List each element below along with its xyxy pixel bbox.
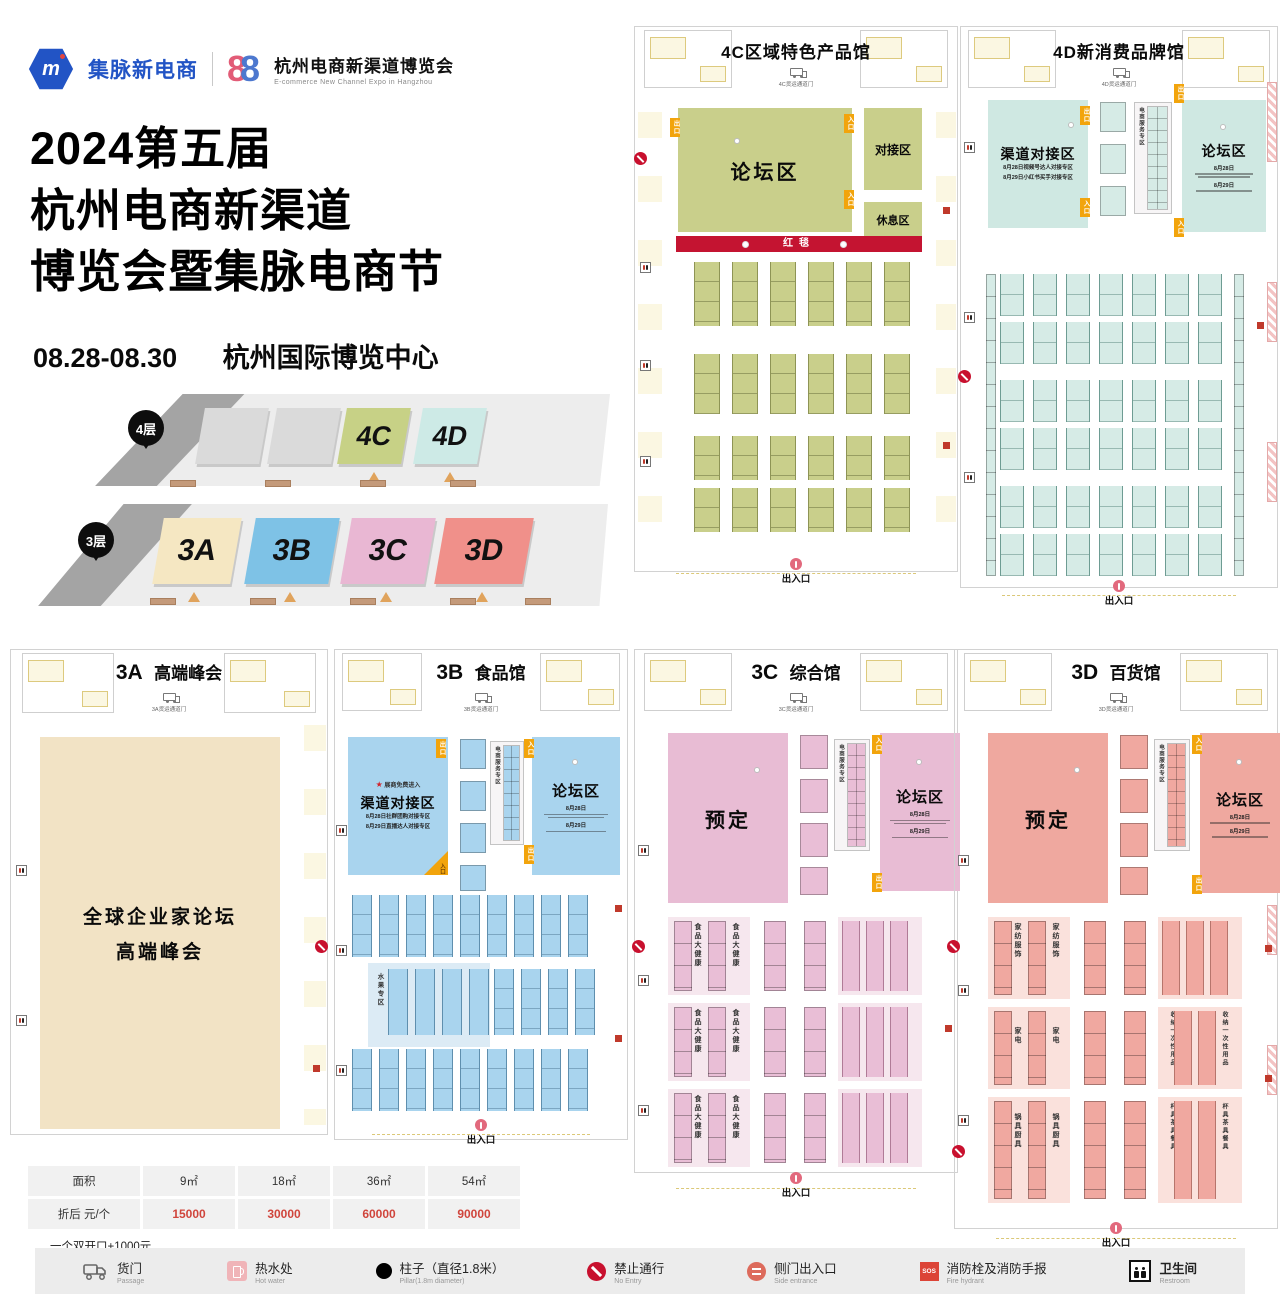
price-header-cell: 面积 xyxy=(28,1166,140,1196)
truck-gate-label: 3C货运通道门 xyxy=(632,705,960,713)
no-entry-icon xyxy=(632,940,645,953)
hatched-area xyxy=(1267,1045,1277,1095)
service-booths xyxy=(1147,106,1168,210)
no-entry-icon xyxy=(634,152,647,165)
tag-entry: 入口 xyxy=(872,735,882,754)
restroom-icon xyxy=(640,360,651,371)
arrow-up-icon xyxy=(188,586,200,602)
booth-grid xyxy=(694,488,910,532)
title-line-2: 杭州电商新渠道 xyxy=(30,180,444,242)
floor3-hall-3b: 3B xyxy=(244,518,340,584)
restroom-icon xyxy=(336,945,347,956)
star-note: ★ 展商免费进入 xyxy=(376,780,421,789)
booth-cell xyxy=(800,779,828,813)
zone-reserved: 预定 xyxy=(668,733,788,903)
floor3-hall-3c: 3C xyxy=(340,518,436,584)
booth-column xyxy=(994,1011,1012,1085)
booth-column xyxy=(1084,1101,1106,1199)
price-header-cell: 54㎡ xyxy=(428,1166,520,1196)
restroom-icon xyxy=(638,845,649,856)
booth-grid xyxy=(388,969,489,1035)
fire-hydrant-icon xyxy=(943,207,950,214)
hatched-area xyxy=(1267,442,1277,502)
title-line-1: 2024第五届 xyxy=(30,118,444,180)
loading-dock xyxy=(450,598,476,605)
legend-item-hot-water: 热水处Hot water xyxy=(227,1258,293,1285)
fire-hydrant-icon xyxy=(615,1035,622,1042)
truck-icon xyxy=(1110,693,1123,701)
no-entry-icon xyxy=(315,940,328,953)
arrow-up-icon xyxy=(380,586,392,602)
tag-entry: 入口 xyxy=(438,863,446,874)
truck-gate-label: 3B货运通道门 xyxy=(332,705,630,713)
fire-hydrant-icon xyxy=(1265,1075,1272,1082)
floor4-hall-unlabeled-1 xyxy=(195,408,269,464)
booth-grid xyxy=(694,262,910,326)
truck-gate-label: 4D货运通道门 xyxy=(958,80,1280,88)
booth-column xyxy=(1084,1011,1106,1085)
restroom-icon xyxy=(638,975,649,986)
88-logo-icon: 88 xyxy=(227,51,260,87)
hall-3c-plan: 3C 综合馆 3C货运通道门 预定 电商服务专区 论坛区 8月28日 8月29日… xyxy=(632,645,960,1195)
hall-title: 4D新消费品牌馆 xyxy=(958,38,1280,63)
booth-grid xyxy=(1000,380,1222,422)
booth-cell xyxy=(800,735,828,769)
zone-forum: 论坛区 xyxy=(678,108,852,232)
zone-ecommerce-service: 电商服务专区 xyxy=(490,741,524,845)
gate-label: 出入口 xyxy=(952,1235,1280,1249)
floor4-hall-4d: 4D xyxy=(413,408,487,464)
tag-entry: 入口 xyxy=(524,739,534,758)
no-entry-icon xyxy=(958,370,971,383)
price-header-cell: 9㎡ xyxy=(143,1166,235,1196)
legend-item-restroom: 卫生间Restroom xyxy=(1129,1258,1197,1285)
fire-hydrant-icon xyxy=(313,1065,320,1072)
booth-grid xyxy=(694,436,910,480)
booth-grid xyxy=(1000,274,1222,316)
floor4-hall-unlabeled-2 xyxy=(267,408,341,464)
pillar-dot xyxy=(840,241,847,248)
hall-3a-plan: 3A 高端峰会 3A货运通道门 全球企业家论坛 高端峰会 xyxy=(8,645,330,1153)
hall-gate: 出入口 xyxy=(632,1172,960,1199)
truck-gate-label: 4C货运通道门 xyxy=(632,80,960,88)
red-carpet: 红毯 xyxy=(676,236,922,252)
price-table: 面积 9㎡ 18㎡ 36㎡ 54㎡ 折后 元/个 15000 30000 600… xyxy=(28,1166,520,1229)
booth-column xyxy=(764,1093,786,1163)
booth-column xyxy=(1124,1101,1146,1199)
expo-name-en: E-commerce New Channel Expo in Hangzhou xyxy=(274,79,454,86)
booth-cell xyxy=(1100,186,1126,216)
arrow-up-icon xyxy=(476,586,488,602)
tag-entry: 入口 xyxy=(844,114,854,133)
truck-icon xyxy=(83,1262,109,1280)
booth-grid xyxy=(694,354,910,414)
booth-cell xyxy=(1100,102,1126,132)
hatched-area xyxy=(1267,282,1277,342)
pillar-dot xyxy=(742,241,749,248)
booth-column xyxy=(1084,921,1106,995)
price-row-label: 折后 元/个 xyxy=(28,1199,140,1229)
restroom-icon xyxy=(964,142,975,153)
booth-column xyxy=(764,1007,786,1077)
hatched-area xyxy=(1267,82,1277,162)
zone-summit: 全球企业家论坛 高端峰会 xyxy=(40,737,280,1129)
floor3-hall-3a: 3A xyxy=(152,518,242,584)
booth-column xyxy=(994,1101,1012,1199)
tag-exit: 出口 xyxy=(1192,875,1202,894)
truck-icon xyxy=(475,693,488,701)
divider xyxy=(212,52,213,86)
truck-gate: 3C货运通道门 xyxy=(632,693,960,713)
booth-grid xyxy=(842,921,908,991)
booth-column xyxy=(1028,1101,1046,1199)
loading-dock xyxy=(360,480,386,487)
pillar-dot xyxy=(1074,767,1080,773)
zone-matching: 对接区 xyxy=(864,108,922,190)
poster-canvas: m 集脉新电商 88 杭州电商新渠道博览会 E-commerce New Cha… xyxy=(0,0,1280,1316)
pillar-icon xyxy=(376,1263,392,1279)
price-header-cell: 18㎡ xyxy=(238,1166,330,1196)
zone-ecommerce-service: 电商服务专区 xyxy=(1154,739,1190,851)
booth-column xyxy=(674,1007,692,1077)
restroom-icon xyxy=(16,865,27,876)
jimai-logo-icon: m xyxy=(28,46,74,92)
loading-dock xyxy=(265,480,291,487)
booth-cell xyxy=(1120,823,1148,857)
arrow-up-icon xyxy=(284,586,296,602)
legend-bar: 货门Passage 热水处Hot water 柱子（直径1.8米）Pillar(… xyxy=(35,1248,1245,1294)
star-icon: ★ xyxy=(376,780,383,789)
legend-item-no-entry: 禁止通行No Entry xyxy=(587,1258,664,1285)
restroom-icon xyxy=(336,825,347,836)
tag-entry: 入口 xyxy=(1080,198,1090,217)
loading-dock xyxy=(250,598,276,605)
legend-item-fire-hydrant: SOS 消防栓及消防手报Fire hydrant xyxy=(920,1258,1047,1285)
restroom-icon xyxy=(640,262,651,273)
no-entry-icon xyxy=(587,1262,606,1281)
booth-column xyxy=(708,921,726,991)
hall-4c-plan: 4C区域特色产品馆 4C货运通道门 论坛区 出口 入口 入口 对接区 休息区 红… xyxy=(632,22,960,614)
event-date: 08.28-08.30 xyxy=(33,343,177,373)
fire-hydrant-icon xyxy=(943,442,950,449)
restroom-icon xyxy=(958,985,969,996)
booth-column xyxy=(1124,921,1146,995)
loading-dock xyxy=(170,480,196,487)
hall-3b-plan: 3B 食品馆 3B货运通道门 ★ 展商免费进入 渠道对接区 8月28日社群团购对… xyxy=(332,645,630,1180)
booth-grid xyxy=(352,1049,588,1111)
truck-gate-label: 3A货运通道门 xyxy=(8,705,330,713)
fire-hydrant-icon xyxy=(945,1025,952,1032)
tag-exit: 出口 xyxy=(670,118,680,137)
jimai-logo-mark: m xyxy=(42,58,60,81)
zone-reserved: 预定 xyxy=(988,733,1108,903)
booth-grid xyxy=(1000,486,1222,528)
zone-forum: 论坛区 8月28日 8月29日 xyxy=(1182,100,1266,232)
zone-rest: 休息区 xyxy=(864,202,922,238)
hall-4d-plan: 4D新消费品牌馆 4D货运通道门 渠道对接区 8月28日视频号达人对接专区 8月… xyxy=(958,22,1280,614)
restroom-icon xyxy=(336,1065,347,1076)
booth-grid xyxy=(1000,534,1222,576)
restroom-icon xyxy=(964,472,975,483)
title-line-3: 博览会暨集脉电商节 xyxy=(30,241,444,303)
floor4-hall-4c: 4C xyxy=(337,408,411,464)
gate-icon xyxy=(475,1119,487,1131)
booth-grid xyxy=(1174,1101,1216,1199)
booth-cell xyxy=(460,865,486,891)
hall-title: 3D 百货馆 xyxy=(952,659,1280,685)
booth-grid xyxy=(494,969,595,1035)
loading-dock xyxy=(350,598,376,605)
booth-column xyxy=(1028,1011,1046,1085)
truck-gate: 4C货运通道门 xyxy=(632,68,960,88)
floor-overview-diagram: 4层 3层 4C 4D 3A 3B 3C 3D xyxy=(20,386,620,636)
gate-label: 出入口 xyxy=(958,593,1280,607)
hall-title: 3A 高端峰会 xyxy=(8,659,330,685)
booth-cell xyxy=(460,823,486,853)
tag-entry: 入口 xyxy=(1174,218,1184,237)
booth-cell xyxy=(460,739,486,769)
truck-gate: 3B货运通道门 xyxy=(332,693,630,713)
tag-exit: 出口 xyxy=(872,873,882,892)
tag-entry: 入口 xyxy=(1192,735,1202,754)
tag-exit: 出口 xyxy=(524,845,534,864)
fire-hydrant-icon xyxy=(615,905,622,912)
pillar-dot xyxy=(1220,124,1226,130)
booth-column xyxy=(674,1093,692,1163)
price-value: 90000 xyxy=(428,1199,520,1229)
truck-gate: 4D货运通道门 xyxy=(958,68,1280,88)
legend-item-side-entrance: 侧门出入口Side entrance xyxy=(747,1258,837,1285)
brand-name: 集脉新电商 xyxy=(88,54,198,84)
truck-icon xyxy=(790,68,803,76)
booth-column xyxy=(708,1007,726,1077)
booth-grid xyxy=(1174,1011,1216,1085)
booth-column xyxy=(1028,921,1046,995)
fire-hydrant-icon xyxy=(1257,322,1264,329)
booth-grid xyxy=(842,1093,908,1163)
restroom-icon xyxy=(638,1105,649,1116)
hall-title: 3B 食品馆 xyxy=(332,659,630,685)
price-value: 30000 xyxy=(238,1199,330,1229)
booth-column xyxy=(764,921,786,991)
gate-label: 出入口 xyxy=(632,571,960,585)
booth-grid xyxy=(352,895,588,957)
floor4-pin: 4层 xyxy=(128,410,164,446)
zone-ecommerce-service: 电商服务专区 xyxy=(834,739,870,851)
price-value: 60000 xyxy=(333,1199,425,1229)
truck-icon xyxy=(163,693,176,701)
booth-column xyxy=(708,1093,726,1163)
price-value: 15000 xyxy=(143,1199,235,1229)
gate-icon xyxy=(1113,580,1125,592)
booth-column xyxy=(674,921,692,991)
booth-strip xyxy=(1234,274,1244,576)
restroom-icon xyxy=(958,1115,969,1126)
booth-column xyxy=(804,1007,826,1077)
booth-strip xyxy=(986,274,996,576)
restroom-icon xyxy=(640,456,651,467)
booth-cell xyxy=(800,867,828,895)
zone-ecommerce-service: 电商服务专区 xyxy=(1134,102,1172,214)
hot-water-icon xyxy=(227,1261,247,1281)
booth-cell xyxy=(460,781,486,811)
booth-cell xyxy=(1120,867,1148,895)
loading-dock xyxy=(450,480,476,487)
loading-dock xyxy=(150,598,176,605)
tag-entry: 入口 xyxy=(844,190,854,209)
booth-cell xyxy=(800,823,828,857)
gate-icon xyxy=(1110,1222,1122,1234)
hall-gate: 出入口 xyxy=(632,558,960,585)
service-booths xyxy=(503,745,520,841)
pillar-dot xyxy=(754,767,760,773)
zone-forum: 论坛区 8月28日 8月29日 xyxy=(532,737,620,875)
loading-dock xyxy=(525,598,551,605)
date-venue-line: 08.28-08.30 杭州国际博览中心 xyxy=(33,336,439,375)
legend-item-pillar: 柱子（直径1.8米）Pillar(1.8m diameter) xyxy=(376,1258,505,1285)
truck-gate-label: 3D货运通道门 xyxy=(952,705,1280,713)
hall-gate: 出入口 xyxy=(958,580,1280,607)
gate-icon xyxy=(790,558,802,570)
hall-gate: 出入口 xyxy=(952,1222,1280,1249)
zone-channel-matching: 渠道对接区 8月28日视频号达人对接专区 8月29日小红书买手对接专区 xyxy=(988,100,1088,228)
expo-logo-text: 杭州电商新渠道博览会 E-commerce New Channel Expo i… xyxy=(274,52,454,86)
booth-column xyxy=(804,1093,826,1163)
booth-column xyxy=(804,921,826,991)
no-entry-icon xyxy=(952,1145,965,1158)
booth-column xyxy=(994,921,1012,995)
side-corridor xyxy=(936,112,956,532)
restroom-icon xyxy=(16,1015,27,1026)
pillar-dot xyxy=(734,138,740,144)
booth-column xyxy=(1124,1011,1146,1085)
sos-icon: SOS xyxy=(920,1262,939,1281)
booth-grid xyxy=(1000,322,1222,364)
booth-cell xyxy=(1120,735,1148,769)
floor3-pin: 3层 xyxy=(78,522,114,558)
brand-row: m 集脉新电商 88 杭州电商新渠道博览会 E-commerce New Cha… xyxy=(28,46,454,92)
truck-icon xyxy=(790,693,803,701)
booth-grid xyxy=(1162,921,1228,995)
restroom-icon xyxy=(964,312,975,323)
price-header-cell: 36㎡ xyxy=(333,1166,425,1196)
hall-title: 3C 综合馆 xyxy=(632,659,960,685)
side-corridor xyxy=(638,112,662,532)
fire-hydrant-icon xyxy=(1265,945,1272,952)
pillar-dot xyxy=(572,759,578,765)
booth-grid xyxy=(1000,428,1222,470)
gate-icon xyxy=(790,1172,802,1184)
legend-item-passage: 货门Passage xyxy=(83,1258,144,1285)
floor3-hall-3d: 3D xyxy=(434,518,534,584)
restroom-icon xyxy=(1129,1260,1151,1282)
zone-channel-matching: ★ 展商免费进入 渠道对接区 8月28日社群团购对接专区 8月29日直播达人对接… xyxy=(348,737,448,875)
no-entry-icon xyxy=(947,940,960,953)
booth-cell xyxy=(1120,779,1148,813)
truck-gate: 3D货运通道门 xyxy=(952,693,1280,713)
truck-icon xyxy=(1113,68,1126,76)
service-booths xyxy=(847,743,866,847)
gate-label: 出入口 xyxy=(632,1185,960,1199)
pillar-dot xyxy=(916,759,922,765)
restroom-icon xyxy=(958,855,969,866)
zone-forum: 论坛区 8月28日 8月29日 xyxy=(1200,733,1280,893)
hall-3d-plan: 3D 百货馆 3D货运通道门 预定 电商服务专区 论坛区 8月28日 8月29日… xyxy=(952,645,1280,1245)
booth-grid xyxy=(842,1007,908,1077)
side-entrance-icon xyxy=(747,1262,766,1281)
tag-exit: 出口 xyxy=(436,739,446,758)
hall-title: 4C区域特色产品馆 xyxy=(632,38,960,63)
expo-name-cn: 杭州电商新渠道博览会 xyxy=(274,52,454,77)
zone-forum: 论坛区 8月28日 8月29日 xyxy=(880,733,960,891)
service-booths xyxy=(1167,743,1186,847)
tag-exit: 出口 xyxy=(1080,106,1090,125)
truck-gate: 3A货运通道门 xyxy=(8,693,330,713)
main-title: 2024第五届 杭州电商新渠道 博览会暨集脉电商节 xyxy=(30,118,444,303)
hall-gate: 出入口 xyxy=(332,1119,630,1146)
pillar-dot xyxy=(1068,122,1074,128)
pillar-dot xyxy=(1236,759,1242,765)
booth-cell xyxy=(1100,144,1126,174)
gate-label: 出入口 xyxy=(332,1132,630,1146)
event-venue: 杭州国际博览中心 xyxy=(223,343,439,373)
